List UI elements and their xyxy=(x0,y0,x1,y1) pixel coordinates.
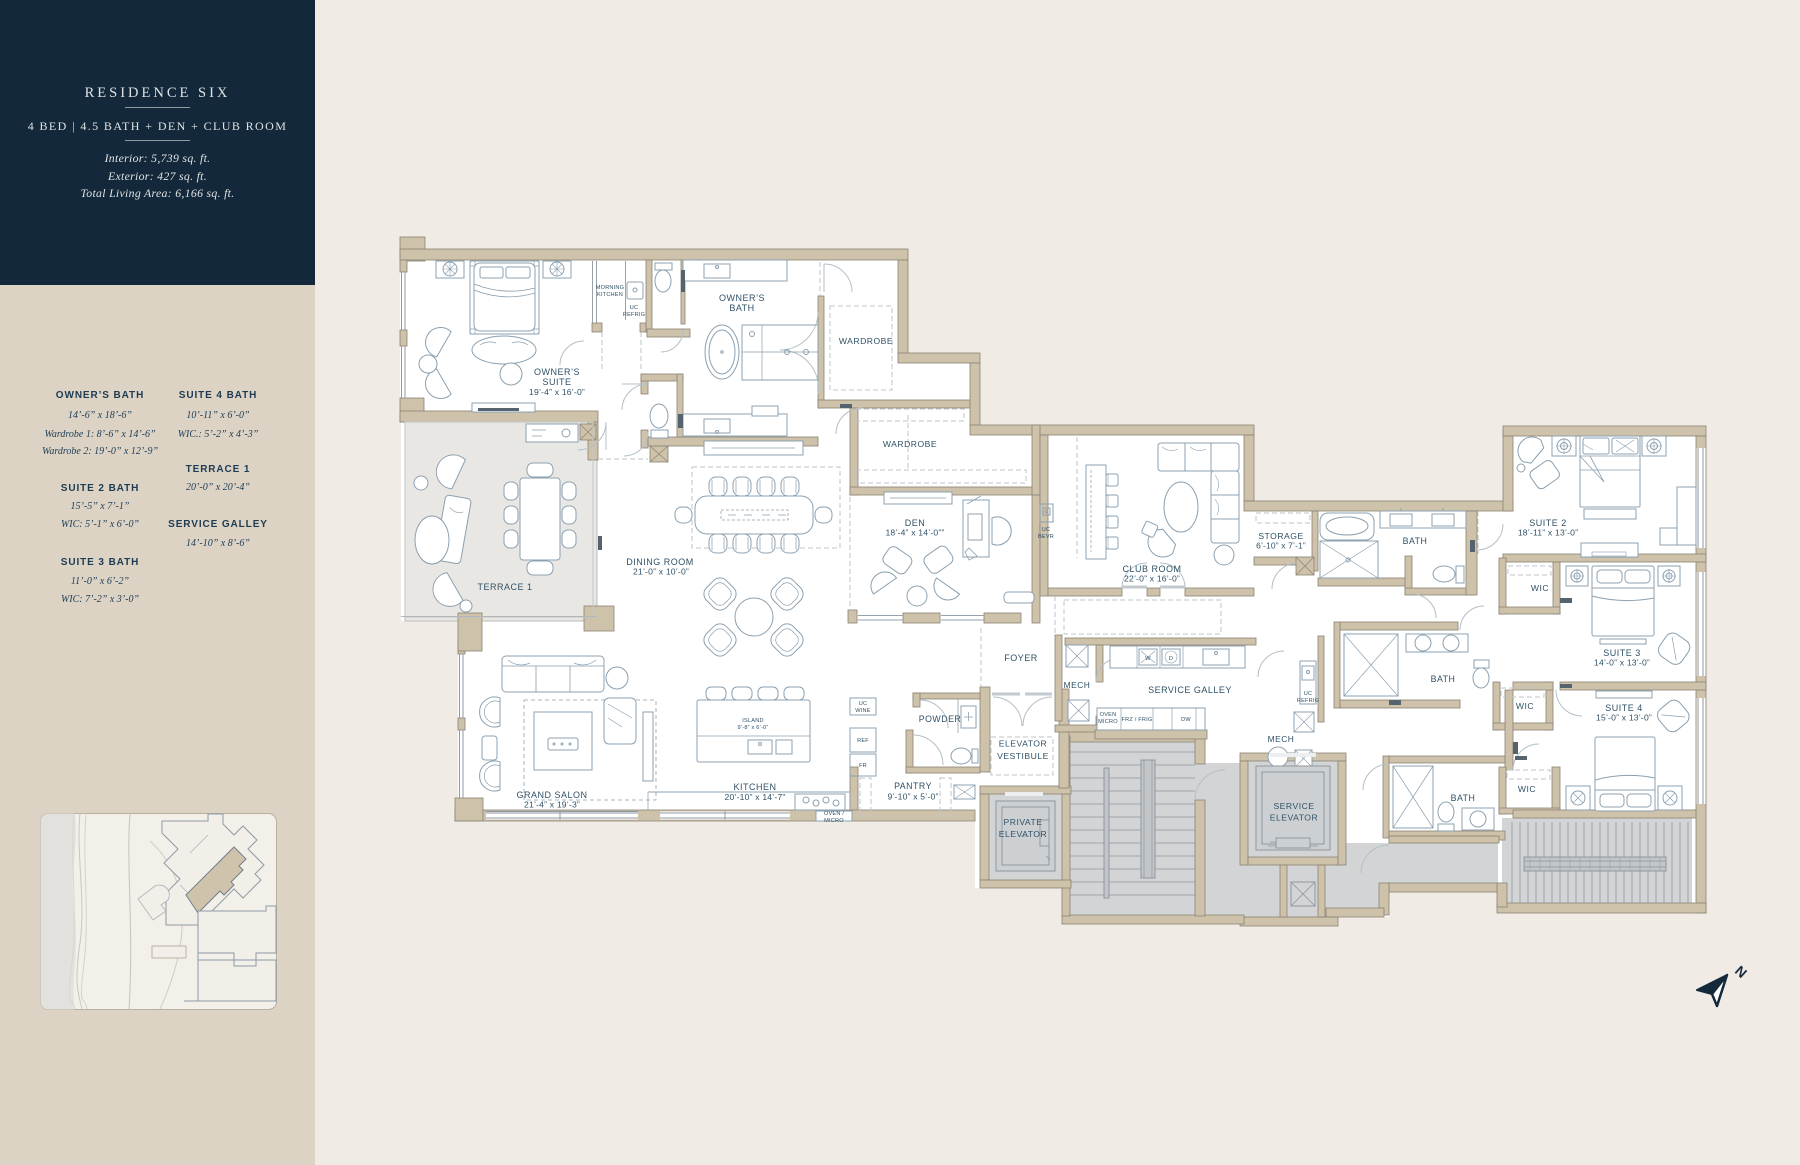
svg-text:9’-10” x 5’-0”: 9’-10” x 5’-0” xyxy=(887,792,938,802)
svg-text:ELEVATOR: ELEVATOR xyxy=(999,829,1047,839)
svg-text:UC: UC xyxy=(630,305,638,311)
svg-text:D: D xyxy=(1169,656,1173,662)
svg-text:BATH: BATH xyxy=(729,303,754,313)
svg-text:FR: FR xyxy=(859,763,867,769)
svg-text:UC: UC xyxy=(1042,527,1050,533)
svg-text:OVEN /: OVEN / xyxy=(824,811,844,817)
svg-text:DEN: DEN xyxy=(905,518,926,528)
svg-text:BEVR: BEVR xyxy=(1038,534,1054,540)
svg-text:PANTRY: PANTRY xyxy=(894,781,932,791)
svg-text:ELEVATOR: ELEVATOR xyxy=(1270,813,1318,823)
svg-text:18’-4” x 14’-0””: 18’-4” x 14’-0”” xyxy=(885,528,944,538)
svg-text:SUITE 4: SUITE 4 xyxy=(1605,703,1643,713)
svg-text:15’-0” x 13’-0”: 15’-0” x 13’-0” xyxy=(1596,713,1652,723)
svg-text:DW: DW xyxy=(1181,717,1191,723)
svg-text:SUITE 3: SUITE 3 xyxy=(1603,648,1641,658)
svg-text:FRZ / FRIG: FRZ / FRIG xyxy=(1122,717,1153,723)
svg-text:MECH: MECH xyxy=(1268,734,1295,744)
svg-text:18’-11” x 13’-0”: 18’-11” x 13’-0” xyxy=(1518,528,1578,538)
svg-text:STORAGE: STORAGE xyxy=(1258,531,1303,541)
svg-text:BATH: BATH xyxy=(1431,674,1456,684)
svg-text:WINE: WINE xyxy=(855,708,870,714)
svg-text:SERVICE GALLEY: SERVICE GALLEY xyxy=(1148,685,1232,695)
svg-text:MECH: MECH xyxy=(1064,680,1091,690)
svg-text:MICRO: MICRO xyxy=(824,818,844,824)
svg-text:21’-0” x 10’-0”: 21’-0” x 10’-0” xyxy=(633,567,689,577)
svg-text:OVEN: OVEN xyxy=(1100,712,1117,718)
svg-text:CLUB ROOM: CLUB ROOM xyxy=(1122,564,1181,574)
svg-text:OWNER’S: OWNER’S xyxy=(534,367,580,377)
svg-text:21’-4” x 19’-3”: 21’-4” x 19’-3” xyxy=(524,800,580,810)
svg-text:22’-0” x 16’-0”: 22’-0” x 16’-0” xyxy=(1124,574,1180,584)
svg-text:W: W xyxy=(1145,656,1151,662)
svg-text:SUITE 2: SUITE 2 xyxy=(1529,518,1567,528)
svg-text:KITCHEN: KITCHEN xyxy=(597,292,623,298)
svg-text:9’-8” x 6’-0”: 9’-8” x 6’-0” xyxy=(738,725,769,731)
svg-text:SUITE: SUITE xyxy=(542,377,571,387)
svg-text:WIC: WIC xyxy=(1518,784,1536,794)
svg-text:WARDROBE: WARDROBE xyxy=(839,336,893,346)
svg-text:UC: UC xyxy=(859,701,867,707)
svg-text:19’-4” x 16’-0”: 19’-4” x 16’-0” xyxy=(529,387,585,397)
svg-text:DINING ROOM: DINING ROOM xyxy=(626,557,694,567)
svg-text:TERRACE 1: TERRACE 1 xyxy=(477,582,532,592)
svg-text:KITCHEN: KITCHEN xyxy=(733,782,776,792)
svg-text:MORNING: MORNING xyxy=(596,285,624,291)
svg-text:VESTIBULE: VESTIBULE xyxy=(997,751,1049,761)
svg-text:GRAND SALON: GRAND SALON xyxy=(516,790,587,800)
svg-text:POWDER: POWDER xyxy=(919,714,962,724)
svg-text:ELEVATOR: ELEVATOR xyxy=(999,739,1047,749)
svg-text:ISLAND: ISLAND xyxy=(742,718,763,724)
svg-text:SERVICE: SERVICE xyxy=(1273,801,1314,811)
svg-text:OWNER’S: OWNER’S xyxy=(719,293,765,303)
svg-text:REFRIG: REFRIG xyxy=(623,312,645,318)
svg-text:REFRIG: REFRIG xyxy=(1297,698,1319,704)
svg-text:PRIVATE: PRIVATE xyxy=(1004,817,1043,827)
svg-text:BATH: BATH xyxy=(1403,536,1428,546)
svg-text:BATH: BATH xyxy=(1451,793,1476,803)
svg-text:20’-10” x 14’-7”: 20’-10” x 14’-7” xyxy=(725,792,786,802)
svg-text:FOYER: FOYER xyxy=(1004,653,1038,663)
svg-text:WIC: WIC xyxy=(1531,583,1549,593)
svg-text:UC: UC xyxy=(1304,691,1312,697)
svg-text:REF: REF xyxy=(857,738,869,744)
svg-text:MICRO: MICRO xyxy=(1098,719,1118,725)
svg-text:14’-0” x 13’-0”: 14’-0” x 13’-0” xyxy=(1594,658,1650,668)
svg-text:6’-10” x 7’-1”: 6’-10” x 7’-1” xyxy=(1256,541,1306,551)
svg-text:N: N xyxy=(1732,962,1750,981)
svg-text:WIC: WIC xyxy=(1516,701,1534,711)
svg-text:WARDROBE: WARDROBE xyxy=(883,439,937,449)
